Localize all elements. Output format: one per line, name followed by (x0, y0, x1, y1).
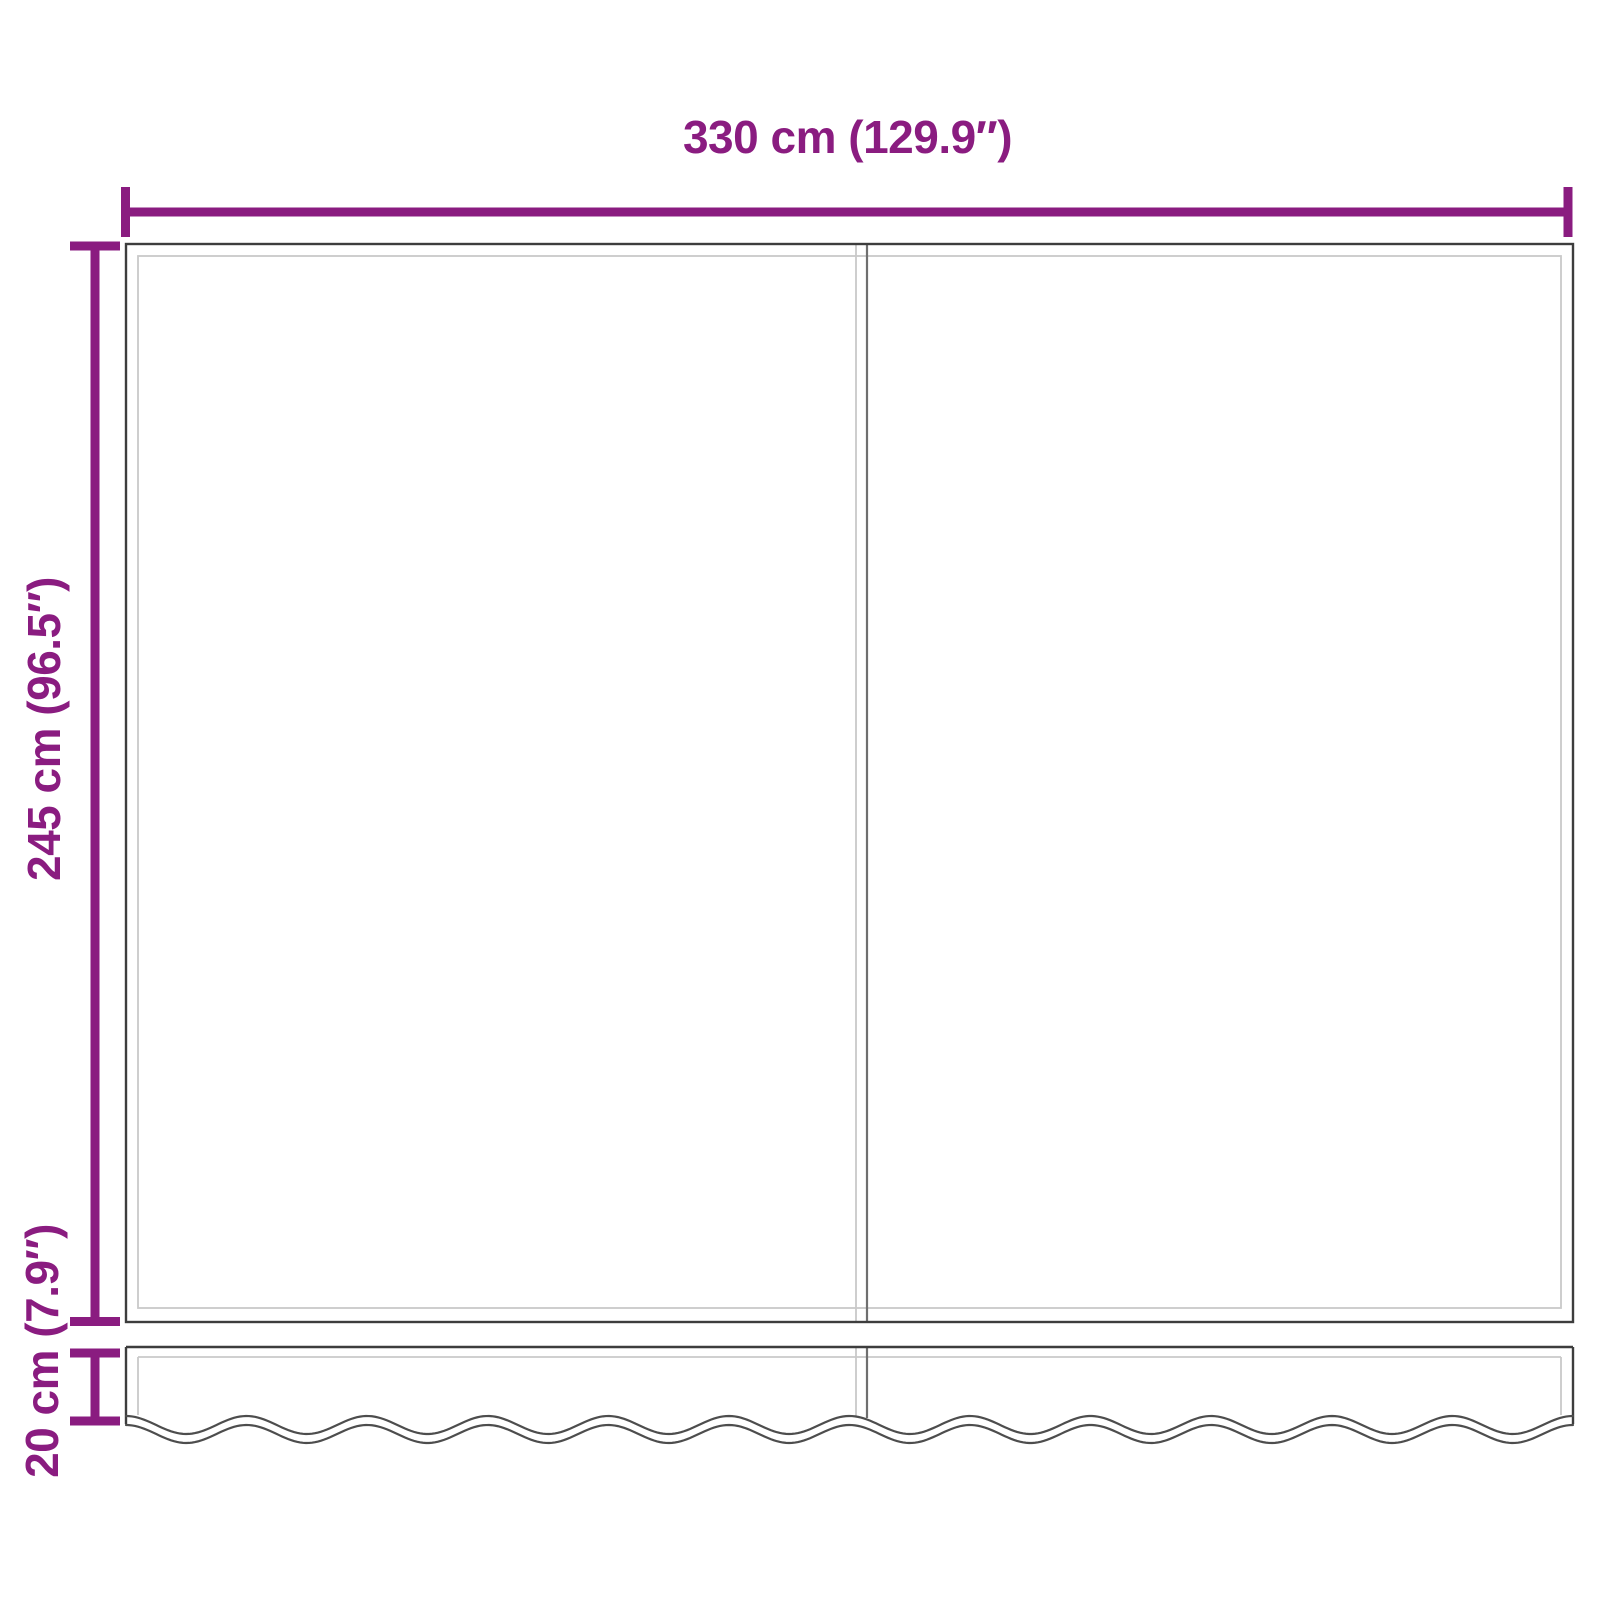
valance-dimension-label: 20 cm (7.9″) (19, 1224, 65, 1478)
valance (126, 1347, 1573, 1443)
valance-wave-lower (126, 1425, 1573, 1443)
fabric-inner-stitch-line (138, 256, 1561, 1308)
valance-dimension (70, 1353, 120, 1421)
dimension-diagram: 330 cm (129.9″) 245 cm (96.5″) 20 cm (7.… (0, 0, 1600, 1600)
width-dimension (126, 187, 1569, 237)
height-dimension (70, 246, 120, 1322)
width-dimension-label: 330 cm (129.9″) (126, 114, 1569, 160)
fabric-outer-border (126, 244, 1573, 1322)
awning-drawing (0, 0, 1600, 1600)
height-dimension-label: 245 cm (96.5″) (21, 577, 67, 881)
main-fabric (126, 244, 1573, 1322)
